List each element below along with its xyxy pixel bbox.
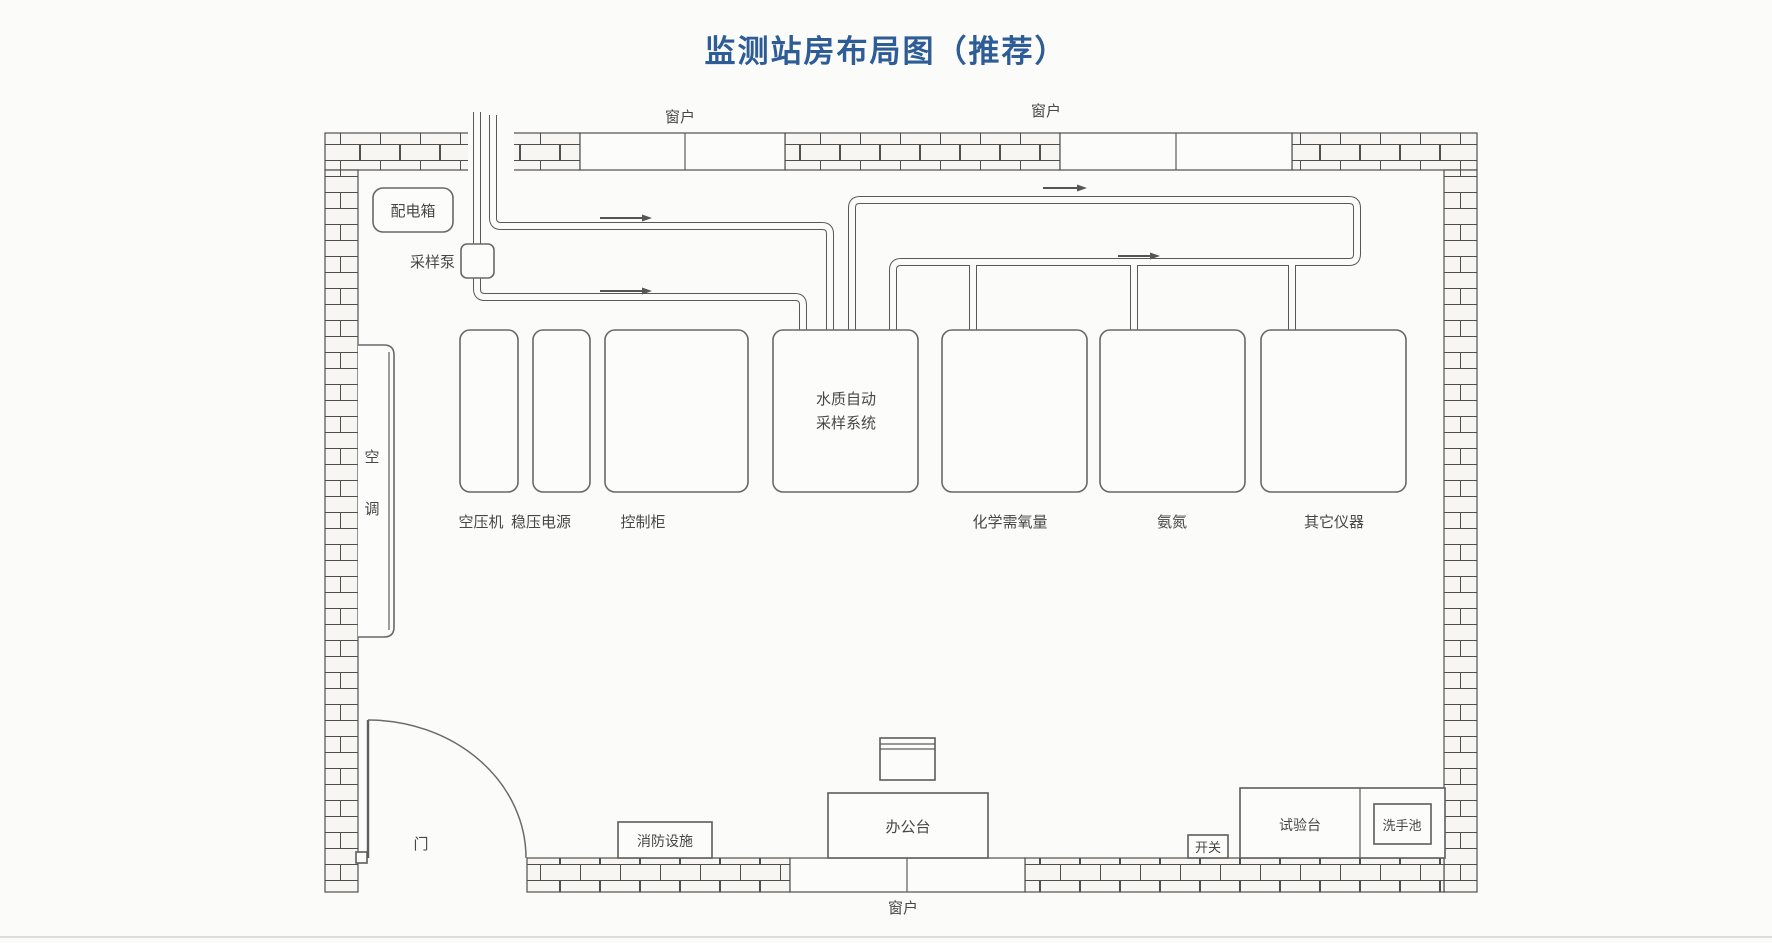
ammonia-nitrogen-label: 氨氮 [1157, 513, 1187, 531]
air-conditioner-label-char2: 调 [364, 500, 379, 518]
wall-segment-bottom-2 [1025, 858, 1444, 892]
pipe-distribution-manifold [852, 200, 1357, 334]
window-label: 窗户 [665, 108, 695, 126]
wall-segment-top-2 [785, 133, 1060, 170]
water-sampler-label-line2: 采样系统 [816, 414, 876, 432]
equipment-box-cod-analyzer [942, 330, 1087, 492]
equipment-box-control-cabinet [605, 330, 748, 492]
fire-equipment-label: 消防设施 [637, 834, 693, 850]
office-chair [880, 738, 935, 780]
sampling-pump-label: 采样泵 [410, 253, 455, 271]
switch-label: 开关 [1195, 841, 1221, 856]
door-swing-arc [368, 720, 526, 858]
wall-segment-bottom-1 [527, 858, 790, 892]
air-conditioner-label-char1: 空 [364, 448, 379, 466]
floor-plan-svg: 窗户 窗户 窗户 配电箱 采样泵 空 调 水质自动 采样系统 空压机 稳压电源 … [0, 0, 1772, 943]
door [356, 720, 526, 863]
wall-segment-top-1 [325, 133, 580, 170]
flow-arrow [1043, 185, 1087, 192]
pipe-distribution-manifold-bore [852, 200, 1357, 334]
cod-analyzer-label: 化学需氧量 [972, 513, 1047, 531]
equipment-box-water-sampler [773, 330, 918, 492]
window-label: 窗户 [1031, 102, 1061, 120]
window-bottom [790, 858, 1025, 892]
wall-segment-top-3 [1292, 133, 1477, 170]
equipment-box-ammonia-nitrogen [1100, 330, 1245, 492]
equipment [358, 188, 1406, 637]
water-sampler-label-line1: 水质自动 [816, 390, 876, 408]
equipment-box-air-compressor [460, 330, 518, 492]
window-frame [580, 133, 785, 170]
test-bench-label: 试验台 [1279, 818, 1321, 834]
door-label: 门 [413, 835, 428, 853]
window-top-left [580, 133, 785, 170]
wall-right [1444, 170, 1477, 892]
equipment-box-voltage-stabilizer [533, 330, 590, 492]
other-instruments-label: 其它仪器 [1304, 513, 1364, 531]
wall-left [325, 170, 358, 892]
furniture [618, 738, 1445, 858]
voltage-stabilizer-label: 稳压电源 [511, 513, 571, 531]
sink-label: 洗手池 [1382, 819, 1421, 834]
window-top-right [1060, 133, 1292, 170]
window-label: 窗户 [888, 899, 918, 917]
control-cabinet-label: 控制柜 [620, 513, 665, 531]
page-bottom-divider [0, 936, 1772, 938]
door-jamb [356, 852, 367, 863]
air-compressor-label: 空压机 [458, 513, 503, 531]
power-distribution-box-label: 配电箱 [390, 202, 435, 220]
office-desk-label: 办公台 [885, 818, 930, 836]
equipment-box-other-instruments [1261, 330, 1406, 492]
flow-arrow [600, 215, 652, 222]
sampling-pump-box [461, 244, 494, 278]
